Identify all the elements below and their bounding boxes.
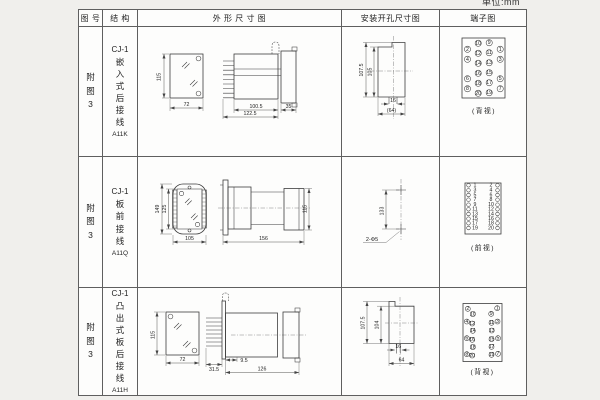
terminal-pin: [496, 222, 500, 226]
terminal-pin-number: 17: [486, 80, 492, 86]
dim-body-depth: 126: [258, 367, 267, 373]
table-row: 附图3 CJ-1 板前接线 A11Q: [79, 157, 527, 288]
terminal-pin-number: 18: [470, 345, 476, 351]
dim-front-height-inner: 125: [162, 205, 168, 214]
terminal-pin-number: 19: [489, 352, 495, 358]
header-mount-holes: 安装开孔尺寸图: [342, 10, 440, 27]
terminal-pin-number: 13: [489, 328, 495, 334]
terminal-pin: [496, 193, 500, 197]
dim-front-width: 72: [184, 102, 190, 108]
terminal-pin: [467, 222, 471, 226]
header-row: 图 号 结 构 外 形 尺 寸 图 安装开孔尺寸图 端子图: [79, 10, 527, 27]
structure-desc: 板前接线: [116, 198, 125, 246]
dim-front-width: 105: [185, 236, 194, 242]
terminal-pin-number: 9: [488, 40, 491, 46]
dim-front-width: 72: [180, 357, 186, 363]
dim-hole-spacing: 133: [380, 207, 386, 216]
terminal-pin-number: 6: [466, 76, 469, 82]
terminal-pin: [496, 226, 500, 230]
terminal-pin: [467, 226, 471, 230]
terminal-pin-number: 8: [465, 352, 468, 358]
terminal-pin-number: 15: [489, 337, 495, 343]
structure-desc: 凸出式板后接线: [116, 300, 125, 384]
terminal-diagram-cell: 1234567891011121314151617181920 (前视): [440, 157, 527, 288]
mount-hole-drawing-row1: 107.5 105 16 (64): [342, 27, 439, 156]
fig-no-text: 附图3: [86, 321, 95, 362]
dim-mount-height-outer: 107.5: [361, 316, 367, 329]
terminal-pin-number: 7: [499, 86, 502, 92]
terminal-pin-number: 10: [475, 41, 481, 47]
terminal-pin: [467, 217, 471, 221]
terminal-pin: [467, 189, 471, 193]
terminal-pin: [496, 212, 500, 216]
front-view: 115 72: [151, 312, 200, 366]
terminal-pin-number: 10: [470, 312, 476, 318]
view-label: (背视): [470, 367, 494, 376]
terminal-pin-number: 16: [469, 337, 475, 343]
terminal-pin: [467, 212, 471, 216]
hole-size-label: 2-Φ5: [366, 237, 378, 243]
structure-code: A11Q: [103, 250, 137, 257]
outline-drawing-row3: 115 72 9.5: [138, 288, 341, 395]
terminal-pin: [496, 198, 500, 202]
document-page: 单位:mm 图 号 结 构 外 形 尺 寸 图 安装开孔尺寸图 端子图 附图3 …: [0, 0, 600, 400]
terminal-pin-number: 5: [499, 76, 502, 82]
terminal-pins: 2109141211314136161558181772019: [464, 40, 503, 97]
terminal-pin: [496, 217, 500, 221]
header-outline-dims: 外 形 尺 寸 图: [138, 10, 342, 27]
header-fig-no: 图 号: [79, 10, 103, 27]
spec-table: 图 号 结 构 外 形 尺 寸 图 安装开孔尺寸图 端子图 附图3 CJ-1 嵌…: [78, 9, 527, 396]
terminal-pin-number: 2: [466, 306, 469, 312]
unit-label: 单位:mm: [482, 0, 520, 8]
terminal-pin-number: 20: [475, 91, 481, 97]
side-view: 156 115: [218, 180, 312, 245]
terminal-pin-number: 16: [475, 71, 481, 77]
structure-cell: CJ-1 嵌入式后接线 A11K: [103, 27, 138, 157]
terminal-pin-number: 11: [489, 320, 494, 326]
dim-front-height: 115: [151, 331, 157, 339]
terminal-pin-number: 7: [497, 351, 500, 357]
terminal-diagram-row3: 2110941211314136161551817820197 (背视): [440, 288, 526, 395]
terminal-pin-number: 1: [496, 306, 499, 312]
terminal-pin-number: 19: [472, 225, 478, 231]
terminal-pin-number: 3: [499, 57, 502, 63]
terminal-pin-number: 4: [466, 57, 469, 63]
terminal-pin-number: 12: [475, 51, 481, 57]
fig-no-cell: 附图3: [79, 27, 103, 157]
fig-no-cell: 附图3: [79, 288, 103, 396]
fig-no-text: 附图3: [86, 71, 95, 112]
terminal-diagram-row2: 1234567891011121314151617181920 (前视): [440, 157, 526, 287]
dim-plate-offset: 9.5: [240, 358, 247, 364]
header-structure: 结 构: [103, 10, 138, 27]
dim-mount-height-outer: 107.5: [359, 63, 365, 76]
outline-drawing-cell: 115 72 9.5: [138, 288, 342, 396]
terminal-pin-number: 20: [469, 353, 475, 359]
terminal-pin: [467, 198, 471, 202]
dim-side-depth: 100.5: [250, 104, 263, 110]
terminal-pin-number: 17: [489, 344, 495, 350]
mount-hole-cell: 133 2-Φ5: [342, 157, 440, 288]
structure-model: CJ-1: [103, 289, 137, 298]
terminal-pins: 1234567891011121314151617181920: [467, 183, 500, 232]
outline-drawing-cell: 115 72 100.5: [138, 27, 342, 157]
side-view: 9.5 31.5 126: [206, 293, 306, 375]
terminal-pin-number: 5: [497, 336, 500, 342]
terminal-pin-number: 9: [490, 311, 493, 317]
table-row: 附图3 CJ-1 嵌入式后接线 A11K 115: [79, 27, 527, 157]
terminal-pin-number: 18: [475, 81, 481, 87]
mount-hole-drawing-row3: 107.5 104 16 64: [342, 288, 439, 395]
structure-cell: CJ-1 凸出式板后接线 A11H: [103, 288, 138, 396]
dim-side-depth-total: 122.5: [244, 111, 257, 117]
terminal-pin-number: 14: [475, 61, 481, 67]
terminal-pin: [467, 208, 471, 212]
structure-model: CJ-1: [103, 45, 137, 54]
terminal-pin-number: 20: [488, 225, 494, 231]
terminal-pin: [496, 208, 500, 212]
terminal-pin: [496, 189, 500, 193]
dim-width-ref: (64): [387, 108, 396, 114]
terminal-pin-number: 19: [486, 90, 492, 96]
terminal-pin: [467, 193, 471, 197]
dim-slot-width: 16: [390, 98, 396, 104]
terminal-pin: [496, 184, 500, 188]
terminal-pin-number: 4: [465, 319, 468, 325]
terminal-pin-number: 11: [487, 50, 492, 56]
structure-desc: 嵌入式后接线: [116, 56, 125, 128]
dim-side-height: 115: [303, 205, 309, 213]
dim-front-height: 115: [157, 73, 163, 81]
dim-mount-height-inner: 104: [375, 321, 381, 330]
terminal-pin: [467, 184, 471, 188]
structure-code: A11H: [103, 387, 137, 394]
outline-drawing-row1: 115 72 100.5: [138, 27, 341, 156]
terminal-diagram-row1: 2109141211314136161558181772019 (背视): [440, 27, 526, 156]
dim-side-length: 156: [259, 236, 268, 242]
terminal-pins: 2110941211314136161551817820197: [464, 306, 500, 359]
view-label: (前视): [471, 243, 495, 252]
terminal-pin-number: 6: [465, 336, 468, 342]
structure-cell: CJ-1 板前接线 A11Q: [103, 157, 138, 288]
outline-drawing-row2: 149 125 105: [138, 157, 341, 287]
dim-fin-depth: 31.5: [209, 367, 219, 373]
terminal-pin-number: 14: [470, 328, 476, 334]
fig-no-text: 附图3: [86, 202, 95, 243]
dim-width-ref: 64: [399, 358, 405, 364]
front-view: 149 125 105: [155, 184, 207, 245]
side-view: 100.5 122.5 35: [223, 42, 297, 119]
outline-drawing-cell: 149 125 105: [138, 157, 342, 288]
terminal-pin-number: 2: [466, 47, 469, 53]
terminal-pin-number: 15: [486, 70, 492, 76]
table-row: 附图3 CJ-1 凸出式板后接线 A11H 115: [79, 288, 527, 396]
terminal-pin: [467, 203, 471, 207]
terminal-pin-number: 8: [466, 86, 469, 92]
dim-panel-thickness: 35: [286, 104, 292, 110]
mount-hole-cell: 107.5 104 16 64: [342, 288, 440, 396]
terminal-diagram-cell: 2109141211314136161558181772019 (背视): [440, 27, 527, 157]
structure-model: CJ-1: [103, 187, 137, 196]
front-view: 115 72: [157, 54, 204, 111]
view-label: (背视): [472, 106, 496, 115]
terminal-pin-number: 3: [496, 319, 499, 325]
dim-front-height-outer: 149: [155, 205, 161, 214]
mount-hole-cell: 107.5 105 16 (64): [342, 27, 440, 157]
header-terminal-diagram: 端子图: [440, 10, 527, 27]
terminal-pin-number: 12: [469, 321, 475, 327]
terminal-pin: [496, 203, 500, 207]
structure-code: A11K: [103, 131, 137, 138]
dim-mount-height-inner: 105: [368, 68, 374, 77]
mount-hole-drawing-row2: 133 2-Φ5: [342, 157, 439, 287]
terminal-diagram-cell: 2110941211314136161551817820197 (背视): [440, 288, 527, 396]
dim-slot-width: 16: [395, 344, 401, 350]
fig-no-cell: 附图3: [79, 157, 103, 288]
terminal-pin-number: 1: [499, 47, 502, 53]
terminal-pin-number: 13: [486, 60, 492, 66]
